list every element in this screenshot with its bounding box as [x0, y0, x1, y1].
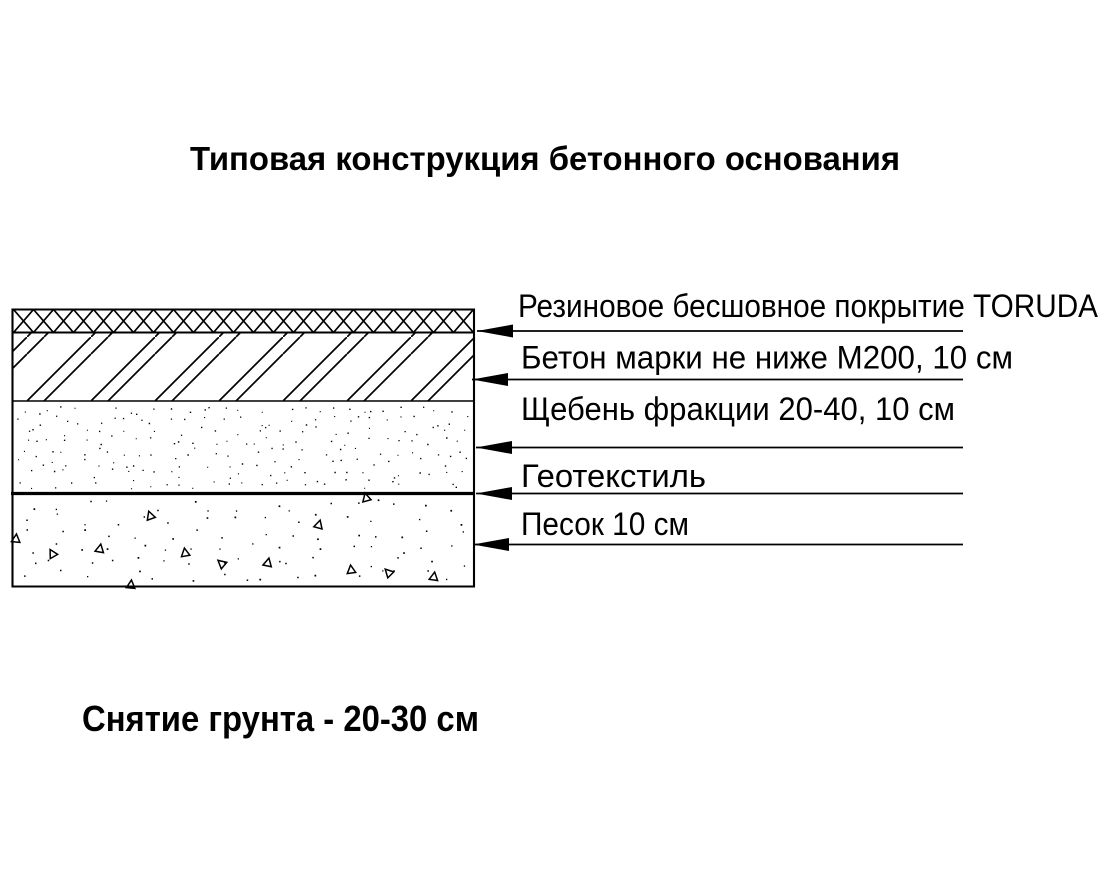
- svg-text:Бетон марки не ниже М200, 10 с: Бетон марки не ниже М200, 10 см: [521, 340, 1013, 376]
- svg-text:Типовая конструкция бетонного: Типовая конструкция бетонного основания: [190, 140, 900, 177]
- svg-text:Резиновое бесшовное покрытие T: Резиновое бесшовное покрытие TORUDA: [518, 288, 1099, 324]
- svg-text:Снятие грунта - 20-30 см: Снятие грунта - 20-30 см: [82, 698, 479, 739]
- svg-text:Щебень фракции 20-40, 10 см: Щебень фракции 20-40, 10 см: [521, 391, 955, 427]
- svg-text:Песок 10 см: Песок 10 см: [521, 506, 689, 542]
- svg-text:Геотекстиль: Геотекстиль: [521, 458, 706, 494]
